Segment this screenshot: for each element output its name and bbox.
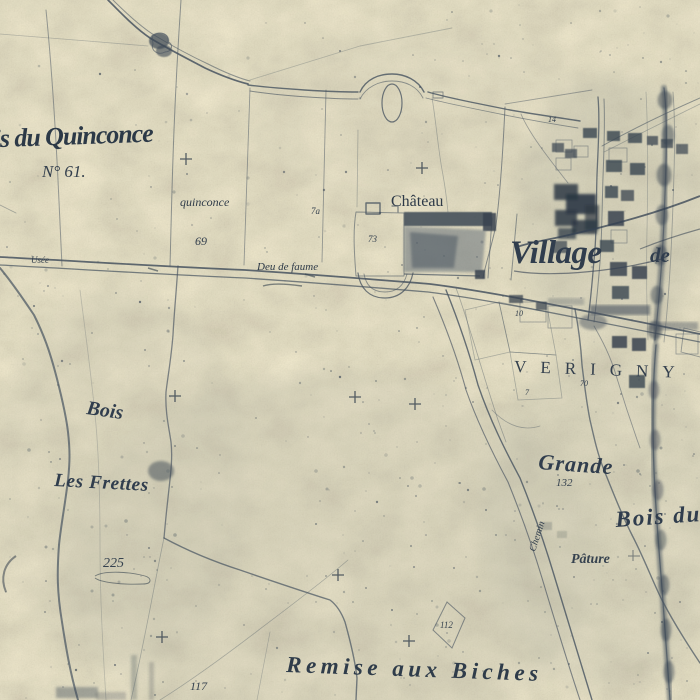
svg-text:117: 117 (190, 679, 208, 693)
svg-text:7a: 7a (311, 206, 321, 216)
svg-text:Usée: Usée (31, 255, 49, 265)
svg-text:N° 61.: N° 61. (41, 162, 86, 181)
svg-text:Château: Château (391, 193, 443, 210)
svg-text:132: 132 (556, 477, 573, 489)
svg-text:is du Quinconce: is du Quinconce (0, 119, 154, 154)
svg-text:de: de (650, 243, 670, 267)
svg-text:70: 70 (580, 379, 588, 388)
svg-text:Deu de faume: Deu de faume (256, 261, 318, 273)
svg-text:73: 73 (368, 234, 378, 244)
svg-text:Grande: Grande (538, 449, 614, 479)
svg-text:quinconce: quinconce (180, 195, 230, 209)
svg-text:112: 112 (440, 620, 453, 630)
svg-text:Pâture: Pâture (571, 552, 610, 567)
svg-text:14: 14 (548, 115, 556, 124)
svg-text:10: 10 (515, 309, 523, 318)
svg-text:69: 69 (195, 234, 207, 248)
svg-text:Village: Village (510, 235, 602, 271)
svg-text:225: 225 (103, 556, 124, 571)
